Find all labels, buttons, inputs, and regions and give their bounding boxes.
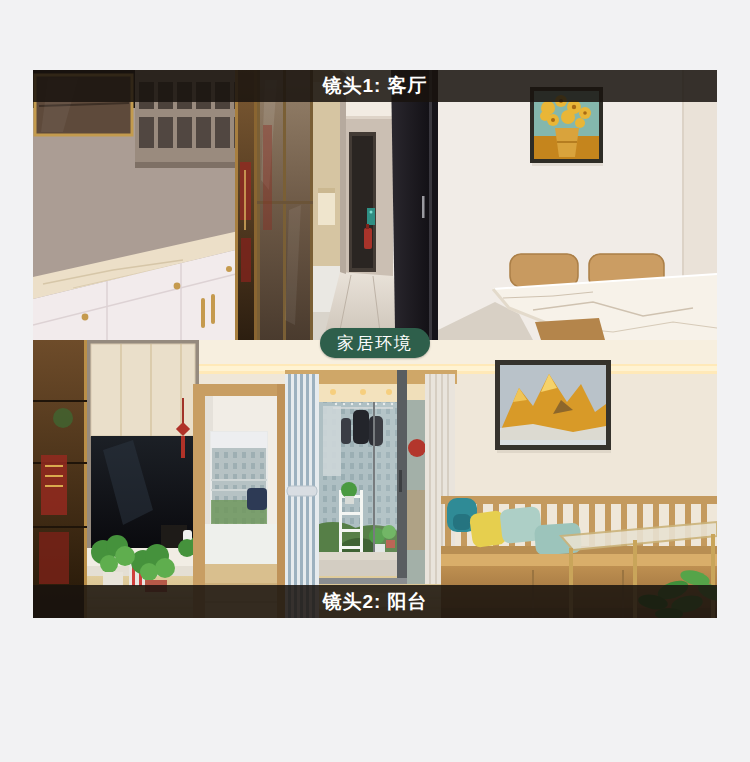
home-environment-badge: 家居环境 bbox=[320, 328, 430, 358]
left-curtain bbox=[285, 374, 319, 618]
red-paper-cut-sticker bbox=[408, 439, 426, 457]
fire-extinguisher bbox=[364, 228, 372, 249]
page-background: { "page": { "background_color": "#f2f2f3… bbox=[0, 0, 750, 762]
amber-glass-cabinet bbox=[235, 70, 257, 340]
open-dark-door bbox=[391, 70, 438, 340]
camera-2-banner: 镜头2: 阳台 bbox=[33, 585, 717, 618]
balcony-photo bbox=[33, 340, 717, 618]
balcony-photo-illustration bbox=[33, 340, 717, 618]
room-photo-gallery: 镜头1: 客厅 家居环境 镜头2: 阳台 bbox=[33, 70, 717, 618]
amber-glass-cabinet-left bbox=[33, 340, 87, 618]
hanging-clothes bbox=[353, 410, 369, 444]
home-environment-badge-label: 家居环境 bbox=[337, 332, 413, 355]
living-room-photo bbox=[33, 70, 717, 340]
bronze-glass-partition bbox=[257, 70, 313, 340]
bedroom-doorway bbox=[193, 384, 289, 618]
navy-backpack bbox=[247, 488, 267, 510]
camera-1-banner-label: 镜头1: 客厅 bbox=[322, 73, 427, 99]
balcony-side-glass bbox=[407, 384, 427, 584]
living-room-photo-illustration bbox=[33, 70, 717, 340]
camera-2-banner-label: 镜头2: 阳台 bbox=[322, 589, 427, 615]
mountain-painting bbox=[495, 360, 611, 453]
camera-1-banner: 镜头1: 客厅 bbox=[33, 70, 717, 102]
